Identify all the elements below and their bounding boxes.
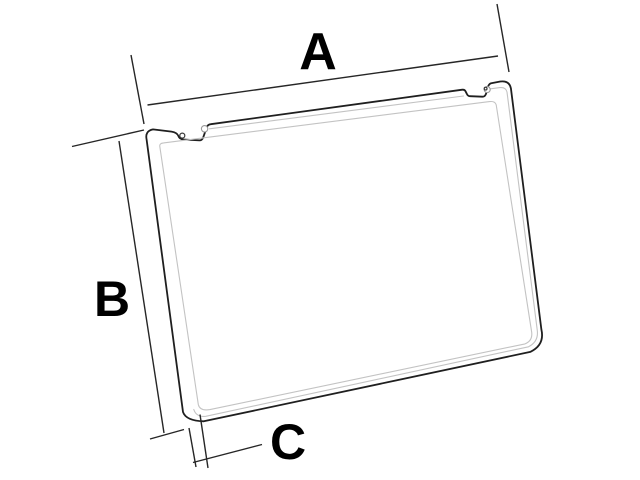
dimension-b-label: B — [94, 271, 130, 327]
notch-pin-left-inner-icon — [201, 126, 207, 132]
technical-diagram: A B C — [0, 0, 640, 480]
dimension-c-extension-left — [189, 428, 196, 467]
dimension-b-extension-bottom — [150, 430, 184, 440]
dimension-c-line — [193, 445, 262, 463]
dimension-a-label: A — [299, 23, 337, 81]
notch-pin-left-icon — [180, 133, 185, 138]
dimension-c-label: C — [270, 414, 306, 470]
dimension-a-extension-left — [131, 55, 144, 124]
dimension-a-extension-right — [497, 4, 509, 72]
dimension-b-extension-top — [72, 130, 144, 147]
dimension-c: C — [189, 414, 306, 470]
diagram-canvas: A B C — [0, 0, 640, 480]
frame-body — [146, 81, 542, 421]
